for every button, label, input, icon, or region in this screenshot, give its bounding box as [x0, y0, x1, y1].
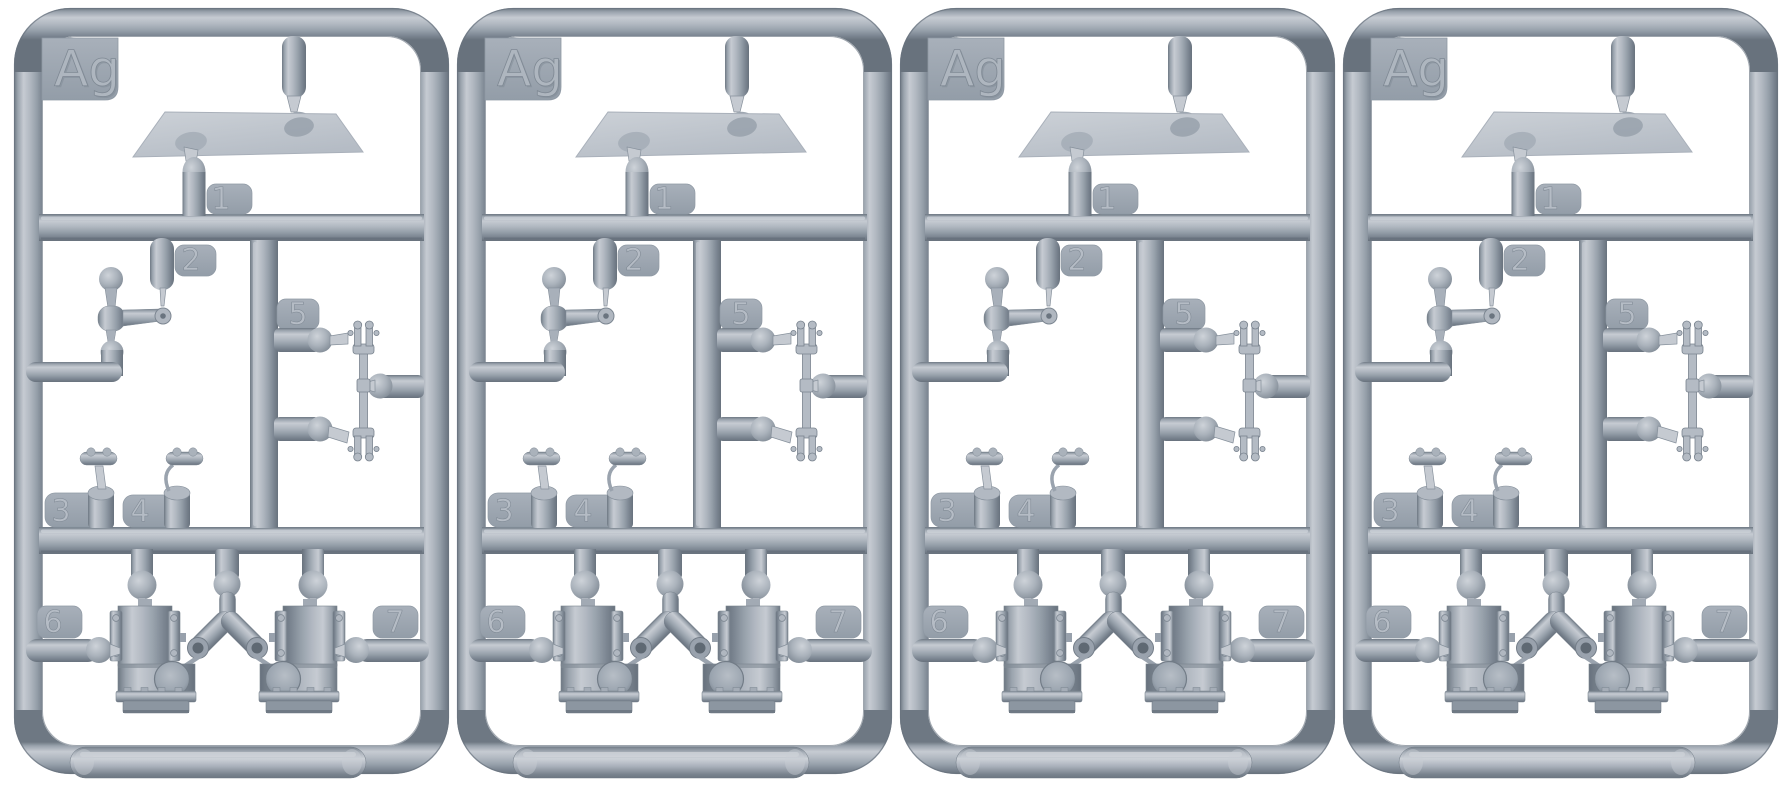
valve-part-4: [607, 448, 646, 528]
part2-feed-runner: [150, 238, 174, 306]
part-number-3-label: 3: [51, 494, 70, 529]
sprue: Ag Ag 1 2: [455, 0, 895, 794]
part-number-3-label: 3: [494, 494, 513, 529]
part-tab-2: 2: [618, 243, 659, 278]
part-number-2-label: 2: [624, 243, 643, 278]
panel-feed-runner: [626, 147, 649, 216]
valve-part-4: [1050, 448, 1089, 528]
pipe-opening: [695, 643, 706, 654]
part-number-2-label: 2: [181, 243, 200, 278]
roof-panel-part: [1462, 112, 1692, 157]
pump-part: [110, 599, 196, 713]
center-divider-bar: [693, 240, 721, 528]
part-number-7-label: 7: [1271, 605, 1290, 640]
part-number-2-label: 2: [1510, 243, 1529, 278]
part-number-5-label: 5: [1174, 297, 1193, 332]
pipe-opening: [193, 643, 204, 654]
sprue-code-label: Ag: [940, 40, 1006, 98]
pump-part: [1439, 599, 1525, 713]
sprue-code-label: Ag: [497, 40, 563, 98]
roof-panel-part: [576, 112, 806, 157]
sprue: Ag Ag 1 2: [1341, 0, 1781, 794]
part-number-1-label: 1: [654, 182, 673, 217]
panel-feed-runner: [1512, 147, 1535, 216]
part-number-1-label: 1: [1540, 182, 1559, 217]
part-number-6-label: 6: [43, 605, 62, 640]
y-pipe-part: [625, 549, 716, 668]
part-number-4-label: 4: [573, 494, 592, 529]
part-tab-2: 2: [175, 243, 216, 278]
part-number-6-label: 6: [486, 605, 505, 640]
sprue-code-tab: Ag Ag: [42, 38, 121, 100]
center-divider-bar: [1579, 240, 1607, 528]
part-number-2-label: 2: [1067, 243, 1086, 278]
part-number-7-label: 7: [1714, 605, 1733, 640]
part-number-6-label: 6: [929, 605, 948, 640]
panel-feed-runner: [1069, 147, 1092, 216]
part2-feed-runner: [1479, 238, 1503, 306]
lever-eye-hole: [1046, 313, 1052, 319]
sprue-code-tab: Ag Ag: [928, 38, 1007, 100]
part-number-7-label: 7: [385, 605, 404, 640]
part-tab-1: 1: [650, 182, 695, 217]
part-number-5-label: 5: [1617, 297, 1636, 332]
center-divider-bar: [1136, 240, 1164, 528]
pipe-opening: [1079, 643, 1090, 654]
y-pipe-part: [1068, 549, 1159, 668]
part-tab-5: 5: [1163, 297, 1205, 332]
pump-part: [553, 599, 639, 713]
sprue-code-tab: Ag Ag: [1371, 38, 1450, 100]
cross-bar-upper: [482, 214, 867, 241]
part-tab-1: 1: [1093, 182, 1138, 217]
lever-eye-hole: [603, 313, 609, 319]
pipe-opening: [252, 643, 263, 654]
sprue-code-label: Ag: [54, 40, 120, 98]
part-tab-1: 1: [207, 182, 252, 217]
part-number-7-label: 7: [828, 605, 847, 640]
part-number-1-label: 1: [1097, 182, 1116, 217]
bottom-capsule-runner: [956, 747, 1252, 778]
panel-feed-runner: [183, 147, 206, 216]
roof-panel-part: [1019, 112, 1249, 157]
lever-eye-hole: [160, 313, 166, 319]
side-feed-runner: [26, 606, 120, 663]
part-number-5-label: 5: [731, 297, 750, 332]
bottom-capsule-runner: [513, 747, 809, 778]
part-number-4-label: 4: [130, 494, 149, 529]
side-feed-runner: [1355, 606, 1449, 663]
sprue-code-label: Ag: [1383, 40, 1449, 98]
side-feed-runner: [912, 606, 1006, 663]
pipe-opening: [1522, 643, 1533, 654]
part-number-3-label: 3: [1380, 494, 1399, 529]
part-number-4-label: 4: [1016, 494, 1035, 529]
valve-part-4: [164, 448, 203, 528]
part-number-6-label: 6: [1372, 605, 1391, 640]
part2-feed-runner: [1036, 238, 1060, 306]
part-number-5-label: 5: [288, 297, 307, 332]
bottom-capsule-runner: [70, 747, 366, 778]
sprue-row: Ag Ag 1 2: [0, 0, 1785, 794]
sprue: Ag Ag 1 2: [12, 0, 452, 794]
pipe-opening: [636, 643, 647, 654]
cross-bar-upper: [39, 214, 424, 241]
part-tab-5: 5: [277, 297, 319, 332]
bottom-capsule-runner: [1399, 747, 1695, 778]
part2-feed-runner: [593, 238, 617, 306]
part-number-4-label: 4: [1459, 494, 1478, 529]
part-tab-2: 2: [1061, 243, 1102, 278]
part-number-1-label: 1: [211, 182, 230, 217]
cross-bar-upper: [1368, 214, 1753, 241]
sprue: Ag Ag 1 2: [898, 0, 1338, 794]
cross-bar-upper: [925, 214, 1310, 241]
part-tab-5: 5: [720, 297, 762, 332]
sprue-code-tab: Ag Ag: [485, 38, 564, 100]
y-pipe-part: [1511, 549, 1602, 668]
part-number-3-label: 3: [937, 494, 956, 529]
part-tab-2: 2: [1504, 243, 1545, 278]
part-tab-5: 5: [1606, 297, 1648, 332]
part-tab-1: 1: [1536, 182, 1581, 217]
roof-panel-part: [133, 112, 363, 157]
pump-part: [996, 599, 1082, 713]
lever-eye-hole: [1489, 313, 1495, 319]
pipe-opening: [1581, 643, 1592, 654]
y-pipe-part: [182, 549, 273, 668]
center-divider-bar: [250, 240, 278, 528]
valve-part-4: [1493, 448, 1532, 528]
side-feed-runner: [469, 606, 563, 663]
pipe-opening: [1138, 643, 1149, 654]
